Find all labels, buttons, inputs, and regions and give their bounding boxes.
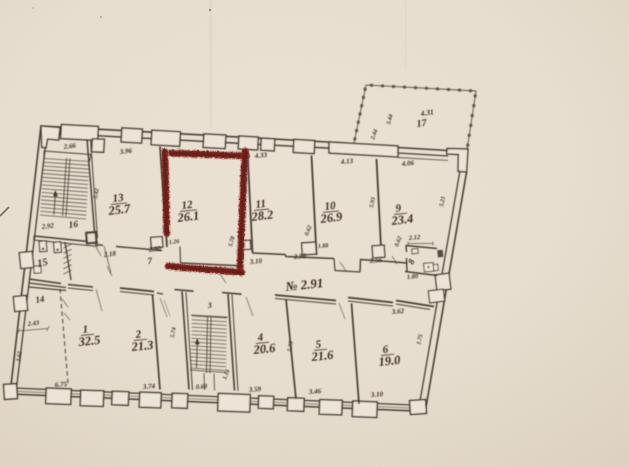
- svg-text:20.6: 20.6: [252, 341, 277, 357]
- svg-text:19.0: 19.0: [378, 353, 402, 369]
- svg-text:3.62: 3.62: [390, 307, 404, 316]
- svg-text:21.6: 21.6: [310, 348, 335, 364]
- svg-text:2.92: 2.92: [40, 221, 55, 231]
- svg-text:3.74: 3.74: [142, 382, 156, 391]
- svg-text:25.7: 25.7: [107, 201, 132, 218]
- svg-text:2.12: 2.12: [408, 234, 422, 242]
- svg-text:3.59: 3.59: [248, 385, 262, 394]
- svg-text:2.90: 2.90: [147, 244, 162, 254]
- svg-text:32.5: 32.5: [77, 333, 101, 349]
- svg-text:3.46: 3.46: [308, 387, 322, 396]
- svg-text:28.2: 28.2: [250, 207, 274, 224]
- svg-text:1.80: 1.80: [407, 273, 420, 281]
- svg-text:16: 16: [68, 220, 79, 231]
- svg-text:2.90: 2.90: [292, 252, 306, 261]
- svg-text:4.06: 4.06: [400, 159, 414, 168]
- svg-text:1.88: 1.88: [318, 243, 329, 250]
- svg-text:15: 15: [36, 257, 49, 270]
- svg-text:4.13: 4.13: [339, 157, 353, 166]
- svg-text:2.56: 2.56: [368, 256, 382, 265]
- svg-text:3.10: 3.10: [248, 257, 262, 266]
- svg-text:3.10: 3.10: [370, 390, 384, 399]
- svg-text:21.3: 21.3: [130, 338, 154, 354]
- svg-text:26.9: 26.9: [319, 209, 344, 226]
- svg-text:23.4: 23.4: [390, 211, 414, 228]
- svg-text:4.33: 4.33: [253, 151, 267, 160]
- svg-text:6.75: 6.75: [55, 380, 68, 389]
- svg-text:1.26: 1.26: [169, 239, 180, 246]
- svg-text:0.60: 0.60: [196, 383, 209, 391]
- svg-text:2.66: 2.66: [62, 141, 77, 151]
- svg-text:3: 3: [206, 301, 212, 310]
- svg-text:3.96: 3.96: [118, 147, 133, 156]
- svg-text:26.1: 26.1: [176, 208, 200, 225]
- svg-text:2.18: 2.18: [102, 249, 117, 259]
